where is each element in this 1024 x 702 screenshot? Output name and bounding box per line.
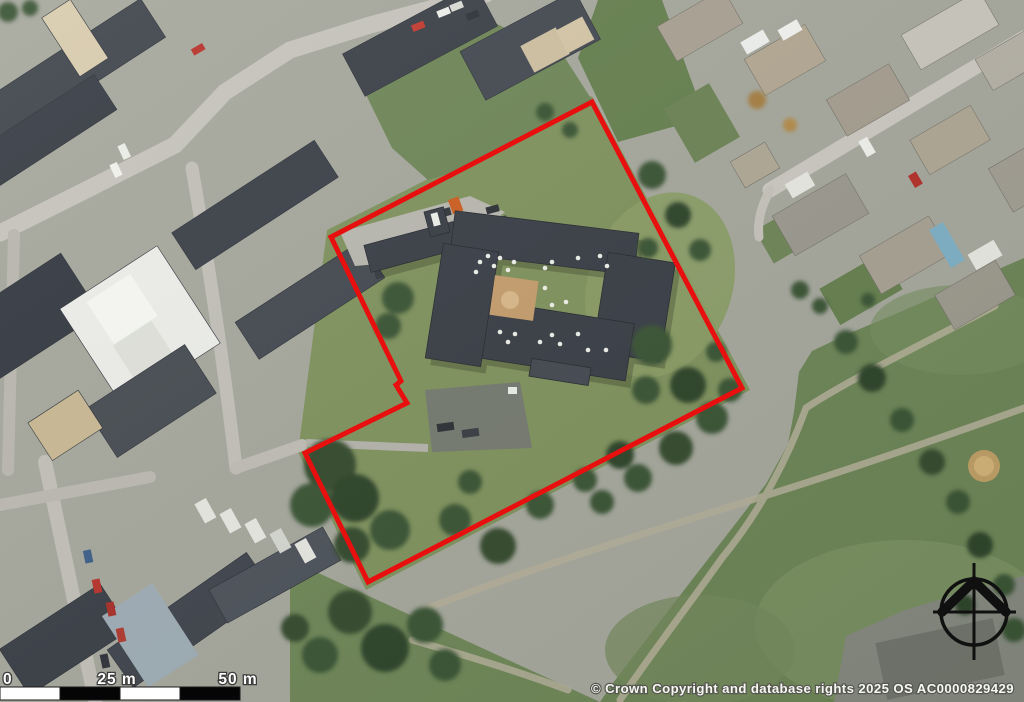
scale-segment-black [180, 687, 240, 700]
aerial-imagery [0, 0, 1024, 702]
photo-sheen [0, 0, 1024, 702]
scale-label-0: 0 [3, 671, 13, 688]
scale-segment-white [0, 687, 60, 700]
scale-segment-white [120, 687, 180, 700]
scale-label-25m: 25 m [97, 671, 136, 688]
scale-segment-black [60, 687, 120, 700]
map-canvas: 0 25 m 50 m © Crown Copyright and databa… [0, 0, 1024, 702]
copyright-text: © Crown Copyright and database rights 20… [591, 681, 1014, 696]
scale-label-50m: 50 m [218, 671, 257, 688]
map-viewport: 0 25 m 50 m © Crown Copyright and databa… [0, 0, 1024, 702]
